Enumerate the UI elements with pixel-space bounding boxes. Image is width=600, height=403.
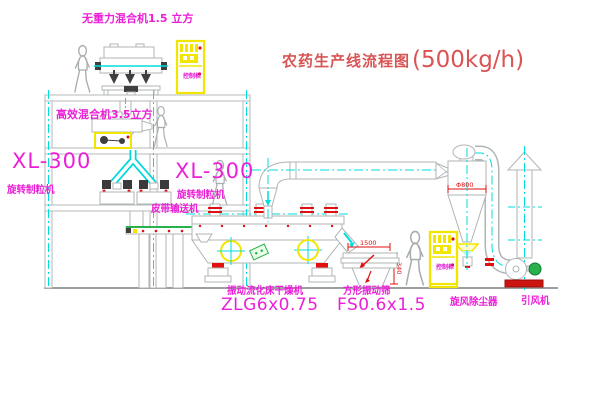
label-granulator-name-center: 旋转制粒机 [177,191,225,201]
label-cabinet-right: 控制柜 [436,262,454,271]
label-fan: 引风机 [521,297,550,307]
label-cyclone: 旋风除尘器 [450,298,498,308]
label-high-efficiency-mixer: 高效混合机3.5立方 [56,109,153,120]
label-dryer-model: ZLG6x0.75 [221,297,319,314]
high-efficiency-mixer-drawing [92,98,152,148]
label-belt-conveyor: 皮带输送机 [151,205,199,215]
label-granulator-model-center: XL-300 [175,161,254,182]
label-screen-model: FS0.6x1.5 [337,297,426,314]
flow-diagram-canvas: 1500 340 Φ800 农药生产线流程图 (500kg/h) 无重力混合机1… [0,0,600,403]
dim-screen-height: 340 [395,262,403,274]
y-chute-drawing [112,150,154,184]
control-cabinet-icon [430,232,457,287]
label-cabinet-top: 控制柜 [183,71,201,80]
label-granulator-model-left: XL-300 [12,151,91,172]
label-granulator-name-left: 旋转制粒机 [7,186,55,196]
diagram-title: 农药生产线流程图 (500kg/h) [282,47,524,73]
belt-conveyor-drawing [126,211,198,288]
gravity-mixer-drawing [94,44,168,95]
granulator-drawing [100,180,171,204]
dim-cyclone-diameter: Φ800 [456,181,474,189]
duct-drawing [252,158,447,222]
title-text: 农药生产线流程图 [282,50,410,71]
dim-screen-length: 1500 [360,239,377,247]
control-cabinet-icon [177,41,204,93]
title-capacity: (500kg/h) [412,47,524,73]
label-gravity-mixer: 无重力混合机1.5 立方 [82,13,193,24]
fan-drawing [505,259,543,288]
